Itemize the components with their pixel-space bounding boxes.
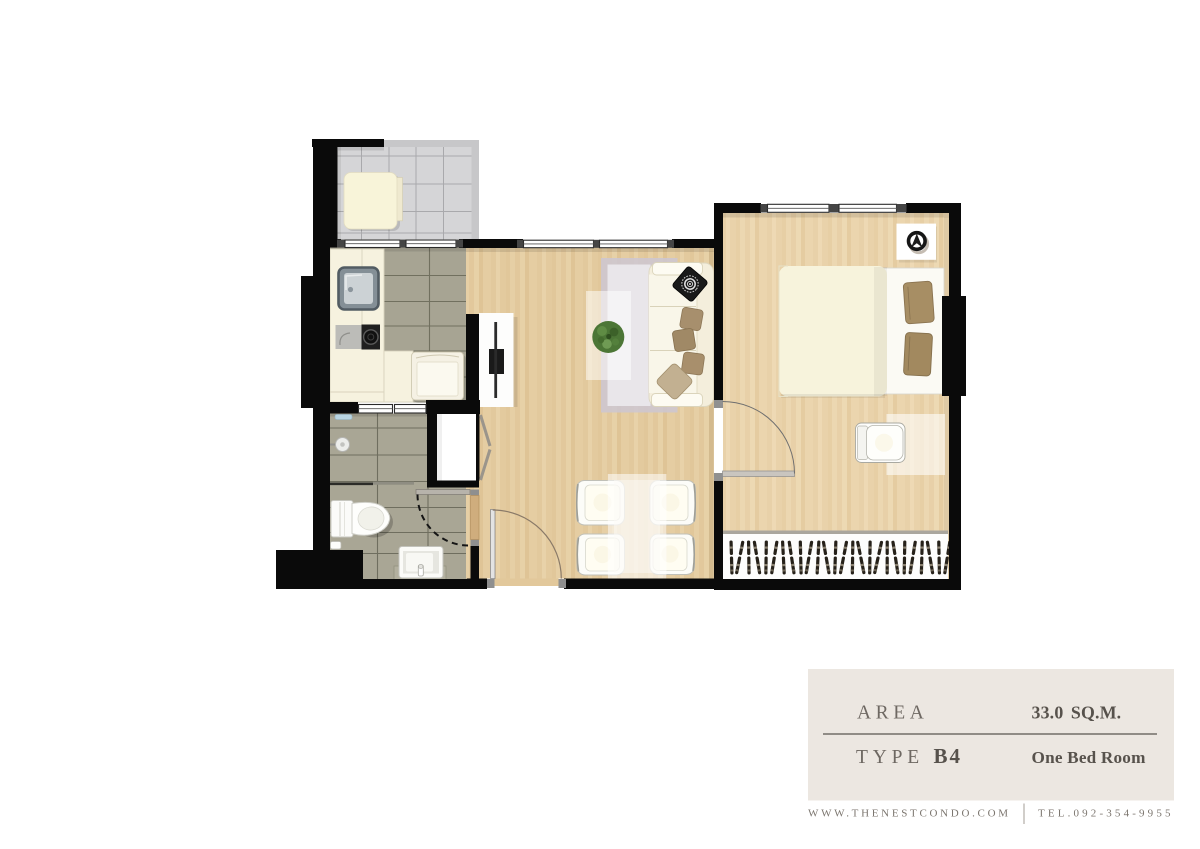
svg-text:One Bed Room: One Bed Room: [1032, 748, 1147, 767]
svg-text:B4: B4: [934, 744, 963, 768]
svg-text:TYPE: TYPE: [856, 747, 924, 768]
svg-text:AREA: AREA: [857, 703, 928, 724]
svg-text:33.0 SQ.M.: 33.0 SQ.M.: [1032, 703, 1122, 723]
svg-text:TEL.092-354-9955: TEL.092-354-9955: [1038, 808, 1174, 820]
svg-text:WWW.THENESTCONDO.COM: WWW.THENESTCONDO.COM: [808, 808, 1011, 820]
